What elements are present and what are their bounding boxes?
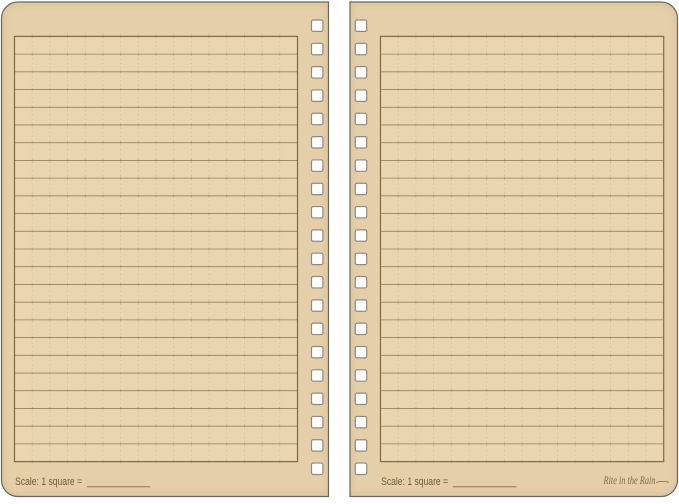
svg-text:Scale: 1 square =: Scale: 1 square = [381, 476, 448, 488]
svg-text:Scale: 1 square =: Scale: 1 square = [15, 476, 82, 488]
svg-text:Rite in the Rain: Rite in the Rain [603, 475, 656, 487]
